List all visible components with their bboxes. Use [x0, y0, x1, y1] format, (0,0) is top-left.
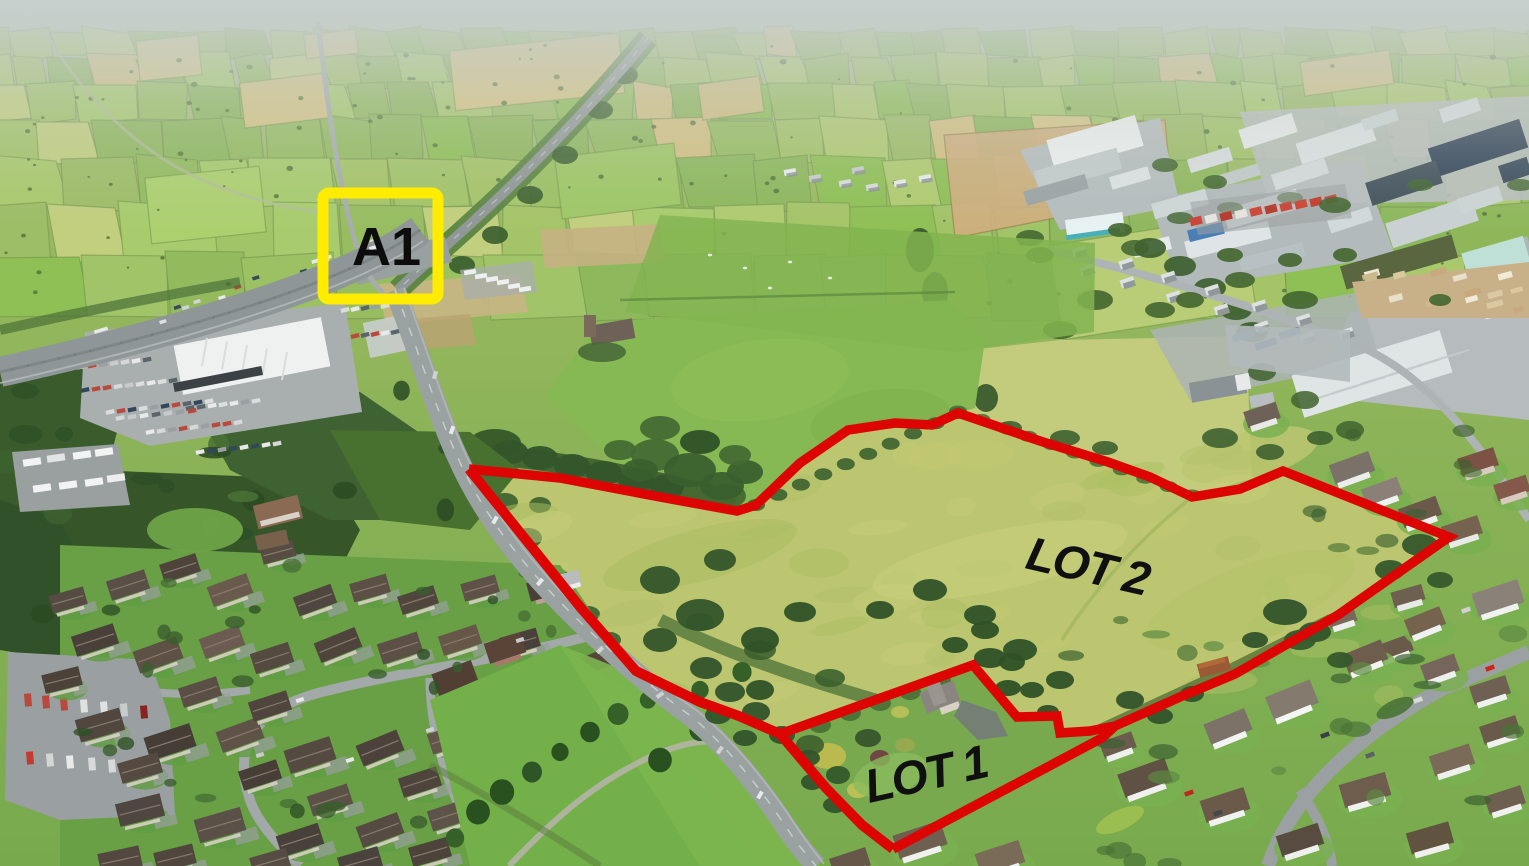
svg-text:A1: A1 — [352, 217, 421, 277]
